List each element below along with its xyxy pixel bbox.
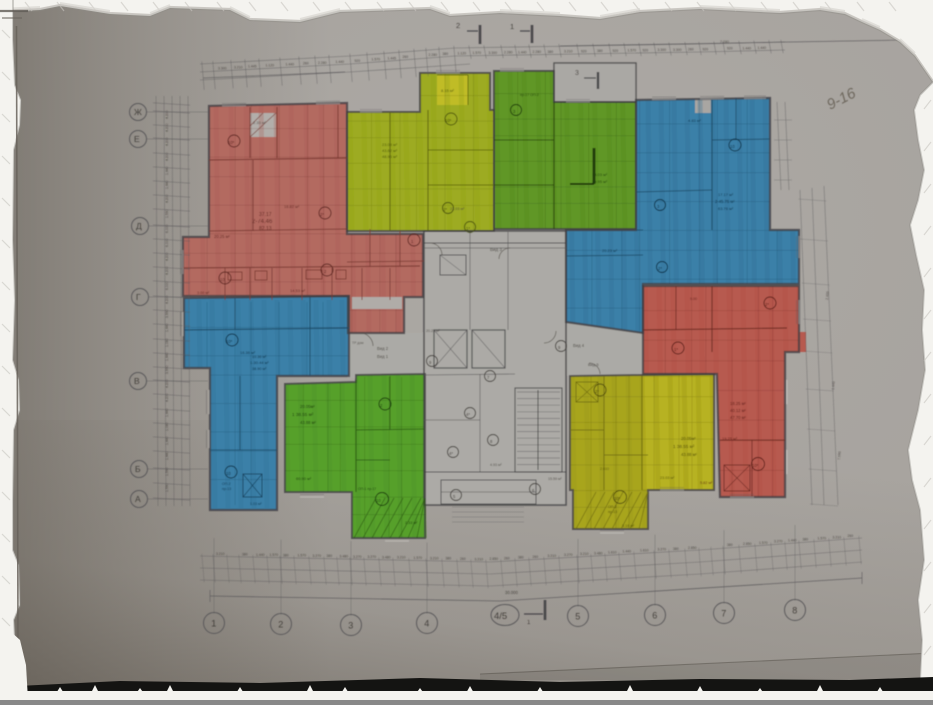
svg-text:4.200: 4.200 — [165, 194, 169, 203]
svg-text:Ж: Ж — [134, 107, 142, 117]
svg-text:3.480: 3.480 — [340, 555, 349, 559]
svg-text:1: 1 — [510, 22, 514, 31]
svg-text:1.570: 1.570 — [298, 554, 307, 558]
svg-text:20.25 м²: 20.25 м² — [214, 234, 231, 239]
svg-text:3.210: 3.210 — [475, 557, 484, 561]
svg-text:40.12 м²: 40.12 м² — [730, 408, 747, 413]
svg-text:3.210: 3.210 — [234, 65, 243, 69]
svg-text:1.570: 1.570 — [372, 58, 381, 62]
svg-text:1.440: 1.440 — [165, 436, 169, 445]
svg-text:1.570: 1.570 — [414, 556, 423, 560]
svg-text:920: 920 — [727, 47, 733, 51]
svg-text:260: 260 — [688, 48, 694, 52]
svg-text:920: 920 — [703, 47, 709, 51]
svg-text:20.23 м²: 20.23 м² — [602, 248, 618, 253]
svg-text:4.200: 4.200 — [165, 252, 169, 261]
svg-text:4.200: 4.200 — [165, 110, 169, 119]
svg-text:380: 380 — [673, 547, 679, 551]
svg-text:10: 10 — [376, 498, 381, 503]
svg-text:920: 920 — [643, 48, 649, 52]
svg-text:2.850: 2.850 — [490, 557, 499, 561]
svg-text:Вид 3: Вид 3 — [490, 247, 502, 252]
svg-text:1.590: 1.590 — [165, 483, 169, 492]
svg-text:3.16 м²: 3.16 м² — [622, 524, 635, 528]
svg-text:3.210: 3.210 — [216, 552, 225, 556]
svg-text:А: А — [135, 494, 141, 504]
svg-text:48.96 м²: 48.96 м² — [382, 154, 398, 159]
svg-text:1*: 1* — [466, 226, 470, 231]
svg-text:1.080: 1.080 — [165, 338, 169, 347]
svg-text:19.25 м²: 19.25 м² — [722, 436, 738, 441]
svg-text:920: 920 — [581, 49, 587, 53]
svg-text:1.440: 1.440 — [623, 550, 632, 554]
svg-text:1.440: 1.440 — [743, 46, 752, 50]
svg-text:380: 380 — [597, 49, 603, 53]
svg-text:1.120: 1.120 — [458, 51, 467, 55]
svg-text:14.53 м²: 14.53 м² — [290, 288, 306, 293]
svg-text:1.440: 1.440 — [165, 408, 169, 417]
svg-text:38.90 м²: 38.90 м² — [252, 367, 267, 371]
svg-text:9.00: 9.00 — [690, 297, 697, 301]
svg-text:5.82 м²: 5.82 м² — [700, 481, 713, 485]
svg-text:7: 7 — [721, 609, 726, 619]
svg-text:60.90 м²: 60.90 м² — [296, 476, 312, 481]
svg-text:260: 260 — [303, 62, 309, 66]
svg-text:10*: 10* — [614, 496, 621, 501]
svg-text:10*: 10* — [228, 140, 235, 145]
svg-text:260: 260 — [533, 555, 539, 559]
svg-text:3.210: 3.210 — [397, 556, 406, 560]
svg-text:37.17: 37.17 — [259, 212, 272, 218]
svg-text:4.93 м²: 4.93 м² — [490, 463, 502, 467]
svg-text:1.120: 1.120 — [266, 64, 275, 68]
svg-text:ТР дом: ТР дом — [352, 341, 364, 345]
svg-text:18.25 м²: 18.25 м² — [730, 401, 747, 406]
svg-text:3.990: 3.990 — [165, 365, 169, 374]
svg-text:1.440: 1.440 — [165, 451, 169, 460]
svg-text:10: 10 — [226, 471, 231, 476]
svg-text:Д: Д — [136, 221, 142, 231]
svg-text:20.05м²: 20.05м² — [300, 404, 315, 409]
svg-text:4.200: 4.200 — [165, 393, 169, 402]
svg-text:1.440: 1.440 — [831, 381, 836, 390]
svg-text:8: 8 — [792, 606, 797, 616]
svg-text:3.480: 3.480 — [382, 555, 391, 559]
svg-text:4.200: 4.200 — [165, 266, 169, 275]
svg-text:1.440: 1.440 — [165, 180, 169, 189]
svg-text:4.83 м²: 4.83 м² — [688, 118, 702, 123]
svg-text:7.590: 7.590 — [837, 451, 842, 460]
svg-text:2.280: 2.280 — [504, 51, 513, 55]
svg-text:260: 260 — [504, 556, 510, 560]
svg-text:2*: 2* — [443, 207, 447, 212]
svg-text:3.210: 3.210 — [564, 50, 573, 54]
svg-text:5: 5 — [575, 612, 580, 622]
svg-text:3.300: 3.300 — [218, 66, 227, 70]
svg-text:пр-13: пр-13 — [608, 510, 617, 514]
svg-text:1.440: 1.440 — [165, 352, 169, 361]
svg-text:15.59 м²: 15.59 м² — [548, 477, 562, 481]
svg-text:23.03 м²: 23.03 м² — [660, 476, 675, 480]
svg-text:6.000: 6.000 — [165, 224, 169, 233]
svg-text:8.15 м²: 8.15 м² — [441, 88, 455, 93]
svg-text:6.000: 6.000 — [165, 281, 169, 290]
svg-text:3.270: 3.270 — [368, 555, 377, 559]
svg-text:2.850: 2.850 — [743, 542, 752, 546]
svg-text:3.300: 3.300 — [658, 48, 667, 52]
svg-text:3: 3 — [575, 70, 579, 77]
svg-text:10: 10 — [220, 277, 225, 282]
svg-text:Г: Г — [136, 292, 141, 302]
svg-text:920: 920 — [355, 59, 361, 63]
svg-text:Вид 1: Вид 1 — [377, 354, 389, 359]
svg-text:2.850: 2.850 — [688, 546, 697, 550]
svg-text:2.610: 2.610 — [600, 467, 609, 471]
svg-text:4/5: 4/5 — [494, 611, 507, 622]
svg-text:3.270: 3.270 — [313, 554, 322, 558]
svg-text:10*: 10* — [445, 118, 452, 123]
svg-text:1.440: 1.440 — [788, 539, 797, 543]
svg-text:2.400: 2.400 — [825, 291, 830, 300]
svg-text:2*: 2* — [320, 212, 324, 217]
svg-text:1.570: 1.570 — [818, 536, 827, 540]
svg-text:3.270: 3.270 — [353, 555, 362, 559]
svg-text:380: 380 — [548, 50, 554, 54]
svg-text:1.440: 1.440 — [518, 50, 527, 54]
svg-text:2.33 м²: 2.33 м² — [253, 120, 267, 125]
svg-text:1.610: 1.610 — [640, 549, 649, 553]
svg-text:20.23 м²: 20.23 м² — [426, 329, 440, 333]
svg-text:380: 380 — [518, 556, 524, 560]
svg-text:43.88 м²: 43.88 м² — [300, 420, 317, 425]
svg-text:1 38.55 м²: 1 38.55 м² — [292, 412, 314, 417]
svg-text:1.445: 1.445 — [388, 56, 397, 60]
svg-text:1.570: 1.570 — [473, 51, 482, 55]
svg-text:10*: 10* — [752, 463, 759, 468]
svg-text:20.05м²: 20.05м² — [681, 436, 696, 441]
svg-text:3.300: 3.300 — [673, 48, 682, 52]
svg-text:3.210: 3.210 — [833, 535, 842, 539]
svg-text:1.590: 1.590 — [165, 467, 169, 476]
svg-text:3.210: 3.210 — [548, 554, 557, 558]
svg-text:2: 2 — [456, 21, 460, 30]
svg-text:380: 380 — [242, 553, 248, 557]
svg-text:3.990: 3.990 — [165, 309, 169, 318]
svg-text:пр-13: пр-13 — [222, 487, 231, 491]
svg-text:2.33 м²: 2.33 м² — [405, 521, 418, 525]
svg-text:260: 260 — [460, 557, 466, 561]
svg-text:4.200: 4.200 — [165, 137, 169, 146]
svg-text:260: 260 — [848, 534, 854, 538]
svg-text:4*: 4* — [449, 451, 453, 456]
svg-text:3.00 м²: 3.00 м² — [197, 291, 210, 295]
svg-text:ОП-1 пр-17: ОП-1 пр-17 — [358, 487, 376, 491]
svg-text:2.280: 2.280 — [318, 61, 327, 65]
svg-text:6.000: 6.000 — [165, 238, 169, 247]
svg-text:3.270: 3.270 — [774, 540, 783, 544]
svg-text:1-30.44 м²: 1-30.44 м² — [250, 360, 269, 365]
svg-text:Б: Б — [135, 464, 141, 474]
svg-text:10*: 10* — [226, 339, 233, 344]
svg-text:30.000: 30.000 — [505, 590, 518, 595]
svg-text:1.590: 1.590 — [165, 209, 169, 218]
svg-text:4.200: 4.200 — [165, 123, 169, 132]
svg-text:1.440: 1.440 — [165, 323, 169, 332]
svg-text:Вид 2: Вид 2 — [377, 346, 389, 351]
svg-text:4.200: 4.200 — [165, 379, 169, 388]
svg-text:380: 380 — [803, 538, 809, 542]
svg-text:3.270: 3.270 — [564, 553, 573, 557]
svg-text:39.95 м²: 39.95 м² — [592, 179, 608, 184]
svg-text:7.280: 7.280 — [720, 40, 729, 44]
svg-text:47.70 м²: 47.70 м² — [730, 415, 747, 420]
svg-text:Вид 5: Вид 5 — [588, 362, 599, 367]
svg-text:1.570: 1.570 — [628, 49, 637, 53]
svg-text:3.210: 3.210 — [430, 556, 439, 560]
svg-text:3.480: 3.480 — [594, 551, 603, 555]
svg-text:1.03 м²: 1.03 м² — [250, 502, 262, 506]
svg-text:13.03 м²: 13.03 м² — [592, 172, 608, 177]
svg-text:1.440: 1.440 — [256, 553, 265, 557]
svg-text:63.76 м²: 63.76 м² — [718, 206, 734, 211]
svg-text:1: 1 — [211, 619, 216, 629]
svg-text:2: 2 — [278, 620, 283, 630]
svg-text:23.03 м²: 23.03 м² — [382, 142, 398, 147]
svg-text:1.445: 1.445 — [248, 65, 257, 69]
svg-text:2.280: 2.280 — [533, 50, 542, 54]
svg-text:3.270: 3.270 — [658, 548, 667, 552]
svg-text:380: 380 — [283, 553, 289, 557]
svg-text:1.080: 1.080 — [165, 422, 169, 431]
svg-text:пр-17 ОП-2: пр-17 ОП-2 — [520, 93, 539, 97]
svg-text:3.210: 3.210 — [580, 552, 589, 556]
svg-text:2.280: 2.280 — [429, 53, 438, 57]
svg-text:82.13: 82.13 — [259, 226, 272, 232]
svg-text:920: 920 — [613, 49, 619, 53]
svg-text:260: 260 — [403, 55, 409, 59]
svg-text:23.03 м²: 23.03 м² — [450, 207, 465, 211]
svg-text:Е: Е — [134, 134, 140, 144]
svg-text:43.62 м²: 43.62 м² — [382, 148, 398, 153]
svg-text:380: 380 — [727, 543, 733, 547]
svg-text:1 38.55 м²: 1 38.55 м² — [673, 444, 695, 449]
svg-text:43.88 м²: 43.88 м² — [681, 452, 698, 457]
svg-text:4.200: 4.200 — [165, 295, 169, 304]
svg-text:Вид 4: Вид 4 — [573, 343, 585, 348]
svg-text:2*: 2* — [765, 302, 769, 307]
svg-text:4*: 4* — [466, 412, 470, 417]
svg-text:1.570: 1.570 — [270, 553, 279, 557]
svg-text:1.440: 1.440 — [758, 46, 767, 50]
svg-text:17.17 м²: 17.17 м² — [718, 192, 734, 197]
svg-text:380: 380 — [446, 557, 452, 561]
svg-text:2-74.46: 2-74.46 — [252, 219, 273, 225]
svg-text:3: 3 — [348, 621, 353, 631]
svg-text:3.300: 3.300 — [489, 51, 498, 55]
svg-text:ОП-2: ОП-2 — [222, 482, 231, 486]
svg-text:1.440: 1.440 — [336, 60, 345, 64]
svg-text:2-45.75 м²: 2-45.75 м² — [715, 199, 735, 204]
svg-text:1*: 1* — [674, 347, 678, 352]
svg-text:4.200: 4.200 — [165, 152, 169, 161]
svg-text:В: В — [134, 376, 140, 386]
svg-text:2*: 2* — [595, 389, 599, 394]
svg-text:1.440: 1.440 — [165, 166, 169, 175]
svg-text:380: 380 — [443, 52, 449, 56]
svg-text:10: 10 — [730, 144, 735, 149]
svg-text:2*: 2* — [658, 266, 662, 271]
svg-text:10.36 м²: 10.36 м² — [252, 355, 267, 359]
svg-text:4: 4 — [424, 619, 429, 629]
svg-text:1.610: 1.610 — [608, 551, 617, 555]
svg-text:ОП-2: ОП-2 — [608, 505, 617, 509]
svg-text:380: 380 — [327, 554, 333, 558]
svg-text:6: 6 — [652, 611, 657, 621]
svg-text:16.82 м²: 16.82 м² — [284, 204, 300, 209]
svg-text:1.570: 1.570 — [759, 541, 768, 545]
svg-text:1.440: 1.440 — [286, 63, 295, 67]
